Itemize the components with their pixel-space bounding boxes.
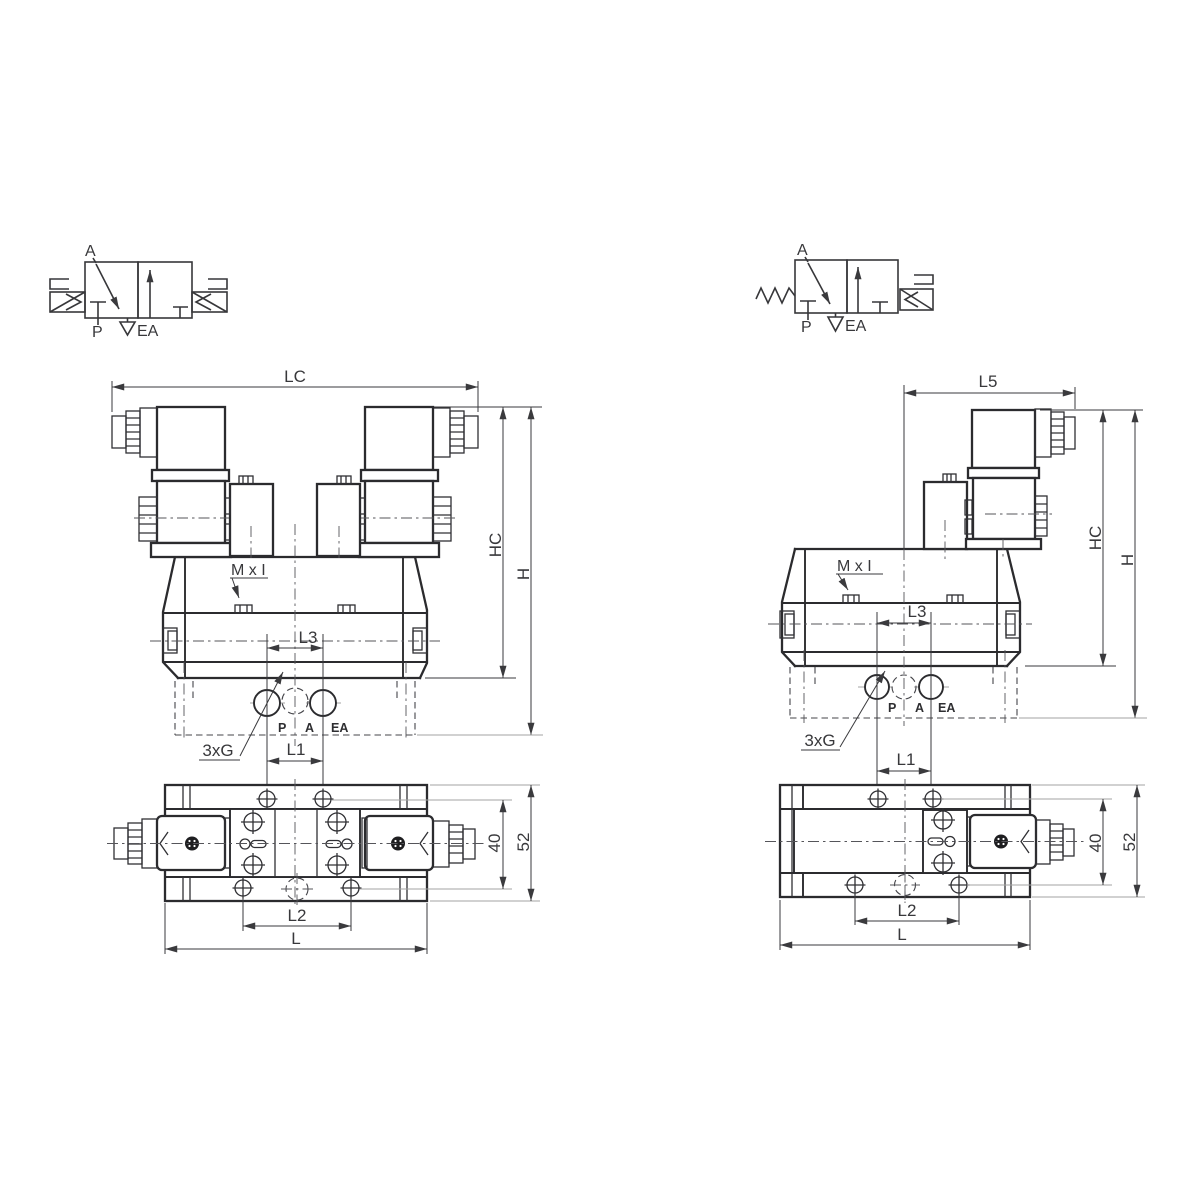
blocked-port-icon — [800, 301, 816, 313]
blocked-port-icon — [173, 307, 188, 318]
flow-arrow-a-ea — [808, 263, 830, 304]
front-view-single: P A EA L5 HC H M x I L3 3xG L1 — [768, 372, 1147, 800]
port-p-label: P — [278, 721, 286, 735]
top-view-double: L2 L 40 52 — [107, 779, 540, 954]
dim-label-h: H — [514, 568, 533, 580]
dim-label-hc: HC — [1086, 526, 1105, 551]
dim-label-40: 40 — [1086, 834, 1105, 853]
port-size-label-3xg: 3xG — [804, 731, 835, 750]
coil-body — [365, 481, 433, 543]
side-lug-right — [1006, 611, 1020, 638]
connector-housing — [972, 410, 1035, 468]
symbol-square-right — [847, 260, 898, 313]
cable-gland-icon — [1035, 409, 1051, 457]
port-p-label: P — [888, 701, 896, 715]
dim-label-40: 40 — [485, 834, 504, 853]
symbol-port-p-label: P — [801, 319, 812, 336]
port-ea-label: EA — [938, 701, 955, 715]
port-a-label: A — [915, 701, 924, 715]
coil-nut — [1035, 496, 1047, 536]
coil-nut — [139, 497, 157, 541]
solenoid-coil-left — [112, 407, 232, 557]
symbol-port-p-label: P — [92, 324, 103, 341]
dim-label-l3: L3 — [299, 628, 318, 647]
dim-label-l3: L3 — [908, 602, 927, 621]
valve-dimensional-drawing: A P EA — [0, 0, 1200, 1200]
mounting-thread-ports — [843, 595, 963, 603]
dim-label-l1: L1 — [287, 740, 306, 759]
pneumatic-symbol-double-solenoid: A P EA — [50, 243, 227, 341]
cable-gland-icon — [112, 416, 126, 448]
coil-flange — [361, 470, 438, 481]
exhaust-triangle-icon — [120, 322, 135, 335]
side-lug-left — [163, 628, 177, 653]
coil-top-left — [114, 816, 230, 870]
leader-3xg — [840, 671, 885, 747]
left-drawing: A P EA — [50, 243, 543, 954]
right-drawing: A P EA — [756, 242, 1147, 950]
thread-label-mxi: M x I — [231, 562, 266, 579]
dim-label-h: H — [1118, 554, 1137, 566]
dim-label-l2: L2 — [898, 901, 917, 920]
coil-body — [973, 478, 1035, 539]
cable-gland-icon — [464, 416, 478, 448]
solenoid-coil-right — [358, 407, 478, 557]
manual-override-icon — [914, 275, 933, 284]
dim-label-lc: LC — [284, 367, 306, 386]
pilot-valve — [924, 474, 972, 560]
symbol-square-left — [85, 262, 138, 318]
coil-body — [157, 481, 225, 543]
side-lug-right — [413, 628, 427, 653]
solenoid-coil — [966, 409, 1075, 560]
top-view-single: L2 L 40 52 — [765, 779, 1145, 950]
dim-label-l: L — [291, 929, 300, 948]
pneumatic-symbol-single-solenoid: A P EA — [756, 242, 933, 336]
dim-label-l: L — [897, 925, 906, 944]
leader-3xg — [240, 672, 283, 756]
front-view-double: P A EA LC HC H M x I L3 3xG L1 — [112, 367, 543, 800]
leader-mxi — [232, 578, 239, 598]
port-ea-label: EA — [331, 721, 348, 735]
symbol-port-ea-label: EA — [845, 318, 867, 335]
symbol-port-ea-label: EA — [137, 323, 159, 340]
pilot-valve-right — [317, 476, 365, 558]
dim-label-52: 52 — [514, 833, 533, 852]
symbol-port-a-label: A — [85, 243, 96, 260]
dim-label-hc: HC — [486, 533, 505, 558]
connector-housing — [365, 407, 433, 470]
port-size-label-3xg: 3xG — [202, 741, 233, 760]
dim-label-l1: L1 — [897, 750, 916, 769]
coil-flange — [152, 470, 229, 481]
exhaust-triangle-icon — [828, 317, 843, 331]
coil-top-right — [362, 816, 475, 870]
technical-drawing-page: A P EA — [0, 0, 1200, 1200]
symbol-square-right — [138, 262, 192, 318]
coil-nut — [433, 497, 451, 541]
leader-mxi — [838, 574, 848, 590]
port-a-label: A — [305, 721, 314, 735]
manual-override-icon-left — [50, 279, 69, 289]
dim-label-l2: L2 — [288, 906, 307, 925]
dim-label-l5: L5 — [979, 372, 998, 391]
connector-housing — [157, 407, 225, 470]
thread-label-mxi: M x I — [837, 558, 872, 575]
symbol-port-a-label: A — [797, 242, 808, 259]
blocked-port-icon — [90, 302, 106, 318]
manual-override-icon-right — [208, 279, 227, 289]
coil-flange — [968, 468, 1039, 478]
blocked-port-icon — [872, 302, 888, 313]
dim-label-52: 52 — [1120, 833, 1139, 852]
pilot-valve-left — [225, 476, 273, 558]
spring-icon — [756, 288, 795, 303]
